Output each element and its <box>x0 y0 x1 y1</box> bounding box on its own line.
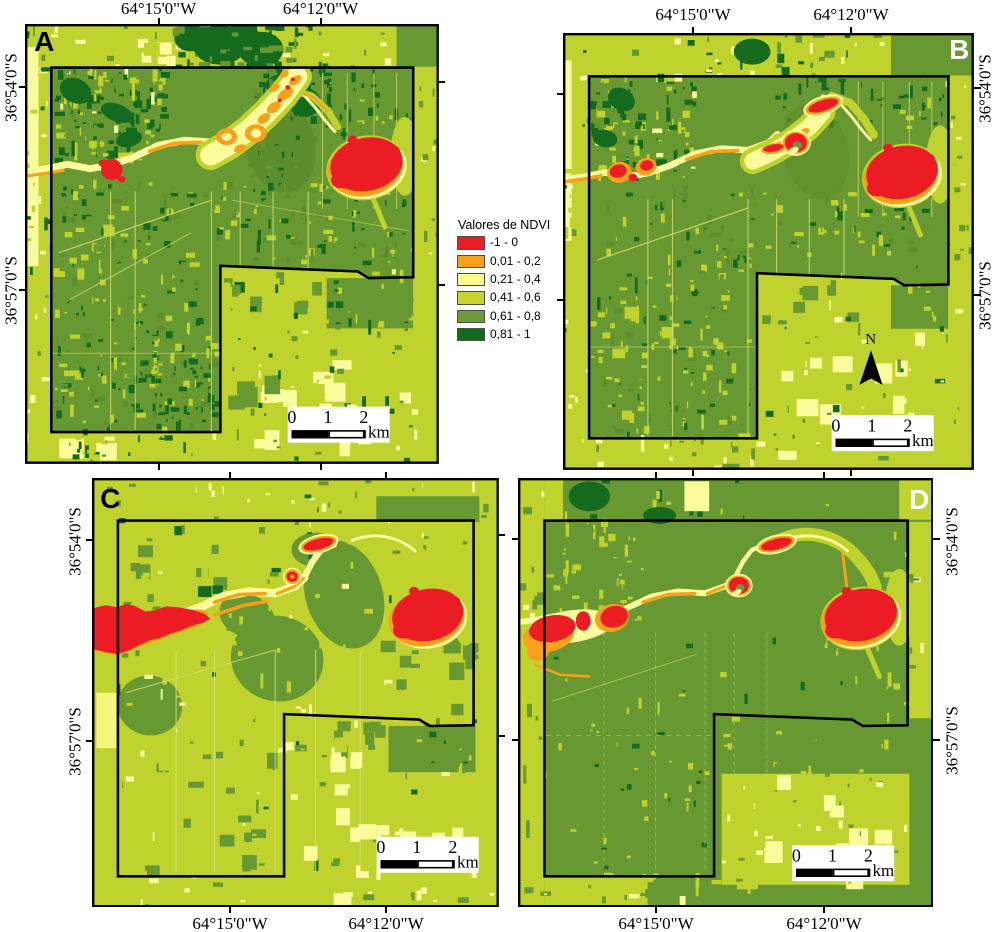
svg-text:D: D <box>909 484 929 515</box>
svg-text:1: 1 <box>828 845 837 865</box>
svg-text:1: 1 <box>412 837 421 857</box>
svg-text:km: km <box>912 431 934 450</box>
svg-text:km: km <box>457 852 479 871</box>
svg-text:0: 0 <box>832 415 841 435</box>
svg-text:0: 0 <box>287 407 296 427</box>
svg-text:0: 0 <box>792 845 801 865</box>
svg-text:B: B <box>949 34 969 65</box>
svg-text:1: 1 <box>868 415 877 435</box>
svg-text:N: N <box>866 331 877 347</box>
svg-text:A: A <box>34 26 54 57</box>
svg-text:0: 0 <box>376 837 385 857</box>
svg-text:km: km <box>368 422 390 441</box>
svg-text:km: km <box>872 861 894 880</box>
svg-text:C: C <box>100 483 120 514</box>
svg-text:1: 1 <box>323 407 332 427</box>
